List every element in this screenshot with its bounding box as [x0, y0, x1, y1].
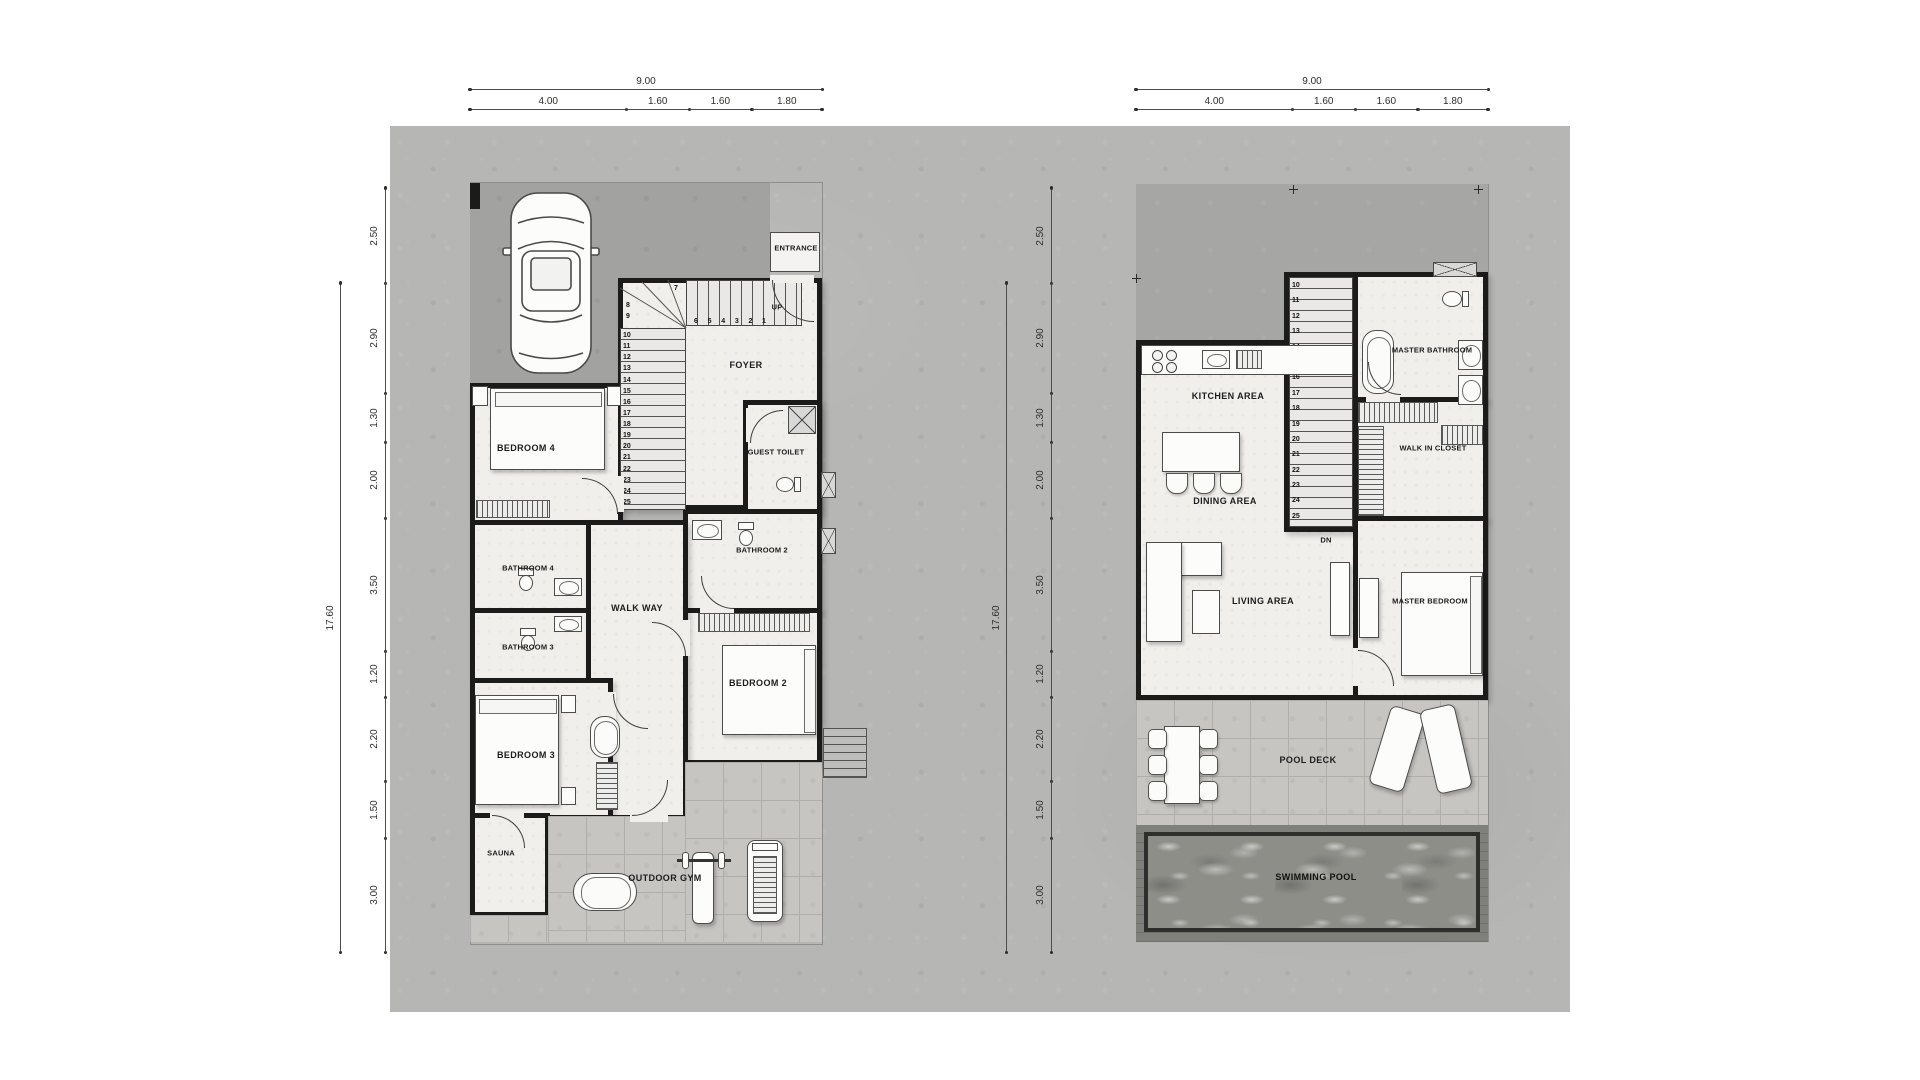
dim-cell: 1.30	[352, 393, 386, 442]
dim-side-segments: 2.50 2.90 1.30 2.00 3.50 1.20 2.20 1.50 …	[352, 188, 386, 952]
dim-value: 1.20	[1035, 664, 1046, 683]
dim-side-total: 17.60	[986, 283, 1007, 952]
stair-number: 4	[721, 318, 725, 325]
dim-top-total: 9.00	[470, 76, 822, 90]
toilet-master	[1442, 290, 1468, 307]
toilet-guest	[776, 476, 800, 492]
stair-number: 13	[623, 365, 631, 372]
dining-table	[1162, 432, 1240, 472]
stair-number: 19	[1292, 421, 1300, 428]
dim-value: 2.20	[1035, 729, 1046, 748]
outdoor-chair	[1148, 729, 1167, 749]
stair-number: 18	[623, 421, 631, 428]
pool-deck-label: POOL DECK	[1280, 755, 1337, 765]
dim-value: 1.80	[1418, 96, 1488, 107]
nightstand	[561, 787, 576, 805]
dim-value: 1.50	[369, 800, 380, 819]
bathroom3-label: BATHROOM 3	[502, 643, 554, 652]
stair-number: 9	[626, 313, 630, 320]
dim-value: 1.60	[626, 96, 689, 107]
pool-water	[1144, 832, 1480, 932]
dim-value: 1.80	[752, 96, 822, 107]
master-bedroom-label: MASTER BEDROOM	[1392, 597, 1468, 606]
dim-value: 3.00	[369, 885, 380, 904]
dim-value: 17.60	[991, 605, 1002, 630]
dim-cell: 2.90	[1018, 283, 1052, 393]
vanity-sink	[1458, 375, 1483, 405]
bathroom2-label: BATHROOM 2	[736, 546, 788, 555]
dim-value: 2.00	[1035, 470, 1046, 489]
walk-in-closet-label: WALK IN CLOSET	[1400, 444, 1467, 453]
dim-value: 2.00	[369, 470, 380, 489]
exterior-steps	[823, 728, 867, 778]
dim-top-segments: 4.00 1.60 1.60 1.80	[1136, 96, 1488, 110]
stair-number: 15	[623, 388, 631, 395]
dim-value: 17.60	[325, 605, 336, 630]
stair-number: 3	[735, 318, 739, 325]
ground-floor-plan: 9.00 4.00 1.60 1.60 1.80 2.50 2.90 1.30 …	[470, 180, 822, 944]
dim-cell: 3.50	[352, 518, 386, 651]
bedroom3-label: BEDROOM 3	[497, 750, 555, 760]
dim-value: 1.50	[1035, 800, 1046, 819]
dim-cell: 1.80	[1418, 96, 1488, 110]
gym-bench	[692, 852, 714, 924]
dim-value: 2.20	[369, 729, 380, 748]
outdoor-chair	[1148, 781, 1167, 801]
dim-value: 1.30	[369, 408, 380, 427]
barbell-plate	[682, 852, 689, 869]
sink-bathroom3	[554, 616, 582, 632]
kitchen-sink	[1202, 350, 1230, 369]
dim-value: 4.00	[470, 96, 626, 107]
dining-chair	[1166, 473, 1188, 494]
coffee-table	[1192, 590, 1220, 634]
dim-value: 2.90	[369, 328, 380, 347]
dim-value: 1.60	[1292, 96, 1355, 107]
down-label: DN	[1320, 536, 1331, 545]
bed-pillows	[1470, 576, 1482, 674]
stair-number: 21	[623, 454, 631, 461]
dim-cell: 1.30	[1018, 393, 1052, 442]
closet-rack	[1441, 425, 1483, 445]
floor-plan-sheet: 9.00 4.00 1.60 1.60 1.80 2.50 2.90 1.30 …	[0, 0, 1920, 1080]
stair-number: 2	[748, 318, 752, 325]
washbasin-tub	[590, 716, 620, 758]
survey-cross-icon	[1474, 185, 1483, 194]
dish-rack	[1236, 350, 1262, 369]
dining-label: DINING AREA	[1193, 496, 1257, 506]
door-gap	[1366, 394, 1400, 402]
stair-number: 20	[1292, 436, 1300, 443]
stair-flight-numbers: 10111213141516171819202122232425	[623, 332, 631, 506]
dim-value: 1.20	[369, 664, 380, 683]
dim-cell: 2.20	[352, 697, 386, 781]
stair-number: 7	[674, 285, 678, 292]
stair-number: 11	[623, 343, 631, 350]
roof-area	[1136, 272, 1284, 342]
stair-number: 10	[623, 332, 631, 339]
dim-value: 3.50	[1035, 575, 1046, 594]
dim-cell: 2.00	[1018, 442, 1052, 518]
dim-cell: 3.50	[1018, 518, 1052, 651]
stair-number: 20	[623, 443, 631, 450]
bed-pillows	[804, 649, 816, 733]
bed-bedroom2	[722, 645, 816, 735]
dim-value: 3.50	[369, 575, 380, 594]
stove-burner	[1152, 362, 1163, 373]
dim-value: 1.60	[689, 96, 752, 107]
bathroom4-label: BATHROOM 4	[502, 564, 554, 573]
bath-window-box	[1433, 262, 1477, 277]
dim-cell: 1.50	[352, 781, 386, 838]
dim-cell: 9.00	[1136, 76, 1488, 90]
survey-cross-icon	[1289, 185, 1298, 194]
stair-number: 18	[1292, 405, 1300, 412]
sink-bathroom4	[554, 578, 582, 596]
treadmill-console	[752, 843, 778, 851]
dim-cell: 1.60	[689, 96, 752, 110]
closet-rack	[1358, 426, 1384, 516]
stair-number: 8	[626, 302, 630, 309]
dim-value: 4.00	[1136, 96, 1292, 107]
stair-flight-numbers: 10111213141516171819202122232425	[1292, 282, 1300, 520]
stove-burner	[1166, 362, 1177, 373]
stove-burner	[1166, 350, 1177, 361]
nightstand	[561, 695, 576, 713]
sauna-label: SAUNA	[487, 849, 515, 858]
outdoor-chair	[1199, 781, 1218, 801]
dining-chair	[1193, 473, 1215, 494]
stair-number: 16	[623, 399, 631, 406]
dim-value: 3.00	[1035, 885, 1046, 904]
stair-number: 23	[1292, 482, 1300, 489]
living-label: LIVING AREA	[1232, 596, 1294, 606]
dim-cell: 1.60	[1355, 96, 1418, 110]
dim-cell: 1.60	[626, 96, 689, 110]
stair-number: 19	[623, 432, 631, 439]
dim-cell: 3.00	[352, 838, 386, 952]
dim-top-total: 9.00	[1136, 76, 1488, 90]
shower-guest-toilet	[788, 406, 816, 434]
stair-number: 25	[1292, 513, 1300, 520]
entrance-label: ENTRANCE	[774, 244, 817, 253]
dim-value: 1.60	[1355, 96, 1418, 107]
bedroom4-label: BEDROOM 4	[497, 443, 555, 453]
wall-vent	[821, 472, 836, 498]
dim-cell: 1.50	[1018, 781, 1052, 838]
stair-number: 25	[623, 499, 631, 506]
dim-cell: 1.20	[1018, 651, 1052, 697]
dim-cell: 2.00	[352, 442, 386, 518]
stair-number: 24	[623, 488, 631, 495]
dim-value: 2.50	[369, 226, 380, 245]
outdoor-table	[1164, 726, 1200, 804]
foyer-label: FOYER	[729, 360, 762, 370]
vanity-sink	[1458, 340, 1483, 370]
master-bathroom-label: MASTER BATHROOM	[1392, 346, 1472, 355]
sofa-section	[1146, 542, 1182, 642]
guest-toilet-label: GUEST TOILET	[748, 448, 805, 457]
stair-number: 22	[1292, 467, 1300, 474]
stair-number: 22	[623, 466, 631, 473]
stair-number: 16	[1292, 374, 1300, 381]
wall-pier	[470, 183, 480, 209]
swimming-pool-label: SWIMMING POOL	[1275, 872, 1356, 882]
dim-cell: 1.20	[352, 651, 386, 697]
stair-number: 21	[1292, 451, 1300, 458]
stair-number: 14	[623, 377, 631, 384]
outdoor-chair	[1199, 729, 1218, 749]
stair-number: 17	[623, 410, 631, 417]
stair-number: 11	[1292, 297, 1300, 304]
dining-chair	[1220, 473, 1242, 494]
dim-value: 1.30	[1035, 408, 1046, 427]
tv-console	[1330, 562, 1350, 636]
wardrobe-bedroom2	[698, 613, 810, 632]
nightstand	[472, 386, 488, 406]
dim-cell: 2.50	[1018, 188, 1052, 283]
dim-side-total: 17.60	[320, 283, 341, 952]
bedroom2-label: BEDROOM 2	[729, 678, 787, 688]
dim-value: 9.00	[1136, 76, 1488, 87]
kitchen-label: KITCHEN AREA	[1192, 391, 1264, 401]
dim-cell: 4.00	[470, 96, 626, 110]
stair-number: 24	[1292, 497, 1300, 504]
dim-value: 2.50	[1035, 226, 1046, 245]
stair-number: 10	[1292, 282, 1300, 289]
stair-number: 6	[694, 318, 698, 325]
bed-pillows	[479, 699, 557, 714]
dim-cell: 2.90	[352, 283, 386, 393]
dim-side-segments: 2.50 2.90 1.30 2.00 3.50 1.20 2.20 1.50 …	[1018, 188, 1052, 952]
dim-cell: 2.50	[352, 188, 386, 283]
sink-bathroom2	[692, 520, 722, 540]
stair-number: 12	[623, 354, 631, 361]
wardrobe-bedroom4	[476, 500, 550, 518]
outdoor-chair	[1199, 755, 1218, 775]
dim-value: 2.90	[1035, 328, 1046, 347]
dim-cell: 1.80	[752, 96, 822, 110]
stair-number: 17	[1292, 390, 1300, 397]
outdoor-chair	[1148, 755, 1167, 775]
stair-number: 23	[623, 477, 631, 484]
dim-cell: 9.00	[470, 76, 822, 90]
dim-cell: 3.00	[1018, 838, 1052, 952]
towel-rack	[596, 762, 618, 810]
stair-number: 1	[762, 318, 766, 325]
car-top-view	[498, 188, 604, 378]
stair-number: 5	[708, 318, 712, 325]
stair-number: 13	[1292, 328, 1300, 335]
treadmill-belt	[753, 856, 777, 914]
roof-area	[1136, 184, 1488, 272]
barbell-plate	[718, 852, 725, 869]
upper-floor-plan: 9.00 4.00 1.60 1.60 1.80 2.50 2.90 1.30 …	[1136, 180, 1488, 944]
wall-vent	[821, 528, 836, 554]
outdoor-gym-label: OUTDOOR GYM	[628, 873, 701, 883]
terrace-tile-left	[470, 915, 548, 942]
closet-rack	[1358, 402, 1438, 423]
stair-run-numbers: 654321	[694, 318, 766, 325]
dresser	[1359, 578, 1379, 638]
dim-top-segments: 4.00 1.60 1.60 1.80	[470, 96, 822, 110]
up-label: UP	[772, 303, 783, 312]
nightstand	[607, 386, 621, 406]
dim-value: 9.00	[470, 76, 822, 87]
dim-cell: 2.20	[1018, 697, 1052, 781]
toilet-bathroom2	[738, 522, 754, 546]
walkway-label: WALK WAY	[611, 603, 663, 613]
stove-burner	[1152, 350, 1163, 361]
dim-cell: 1.60	[1292, 96, 1355, 110]
survey-cross-icon	[1132, 274, 1141, 283]
bed-pillows	[495, 392, 602, 407]
stair-number: 12	[1292, 313, 1300, 320]
dim-cell: 4.00	[1136, 96, 1292, 110]
